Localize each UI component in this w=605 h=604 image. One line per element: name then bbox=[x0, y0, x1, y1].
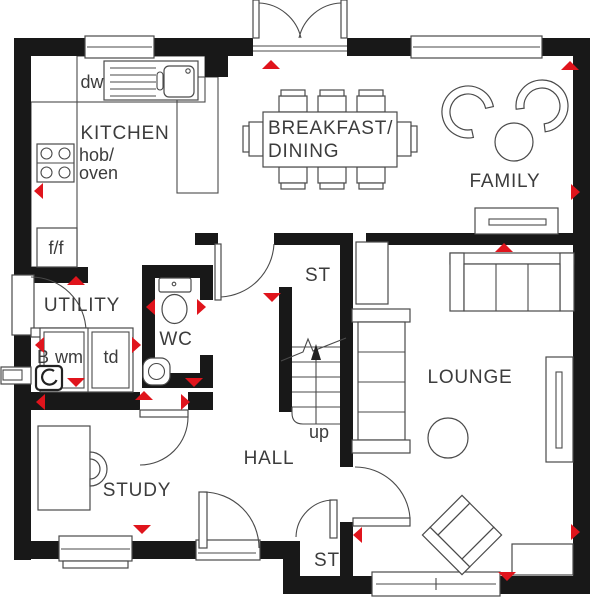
outside-tap bbox=[1, 367, 31, 384]
room-label-storage-upper: ST bbox=[305, 265, 331, 286]
lobby-wc-door bbox=[215, 244, 274, 300]
room-label-utility: UTILITY bbox=[44, 295, 120, 316]
label-hob-line2: oven bbox=[79, 163, 118, 183]
french-doors bbox=[253, 0, 347, 56]
direction-arrow-icon bbox=[197, 299, 206, 315]
tub-chair bbox=[516, 80, 568, 132]
label-hob-line1: hob/ bbox=[79, 145, 114, 165]
coffee-table bbox=[495, 123, 533, 161]
label-fridge-freezer: f/f bbox=[48, 238, 64, 258]
room-label-breakfast-line2: DINING bbox=[268, 141, 339, 162]
room-label-lounge: LOUNGE bbox=[427, 367, 512, 388]
stairs-up-arrow-icon bbox=[311, 344, 321, 360]
label-stairs-up: up bbox=[309, 422, 329, 442]
toilet bbox=[159, 278, 191, 324]
room-label-storage-lower: ST bbox=[314, 550, 340, 571]
armchair bbox=[422, 495, 501, 574]
study-furniture bbox=[38, 426, 107, 510]
direction-arrow-icon bbox=[262, 60, 280, 69]
cupboard bbox=[356, 242, 388, 304]
basin bbox=[143, 358, 170, 385]
label-tumble-dryer: td bbox=[103, 347, 118, 367]
sideboard bbox=[475, 208, 558, 234]
family-window bbox=[411, 36, 542, 58]
room-label-family: FAMILY bbox=[470, 171, 541, 192]
footstool bbox=[512, 544, 573, 575]
front-door bbox=[196, 492, 260, 560]
kitchen-window bbox=[85, 36, 154, 58]
study-door bbox=[140, 410, 188, 465]
room-label-hall: HALL bbox=[244, 448, 295, 469]
room-label-breakfast-line1: BREAKFAST/ bbox=[268, 118, 393, 139]
room-label-wc: WC bbox=[159, 329, 192, 350]
room-label-kitchen: KITCHEN bbox=[81, 123, 170, 144]
desk bbox=[38, 426, 90, 510]
study-window bbox=[59, 536, 132, 568]
label-dishwasher: dw bbox=[80, 72, 104, 92]
storage-lower-door bbox=[296, 500, 337, 538]
lounge-window bbox=[372, 572, 500, 596]
label-washing-machine: wm bbox=[54, 347, 83, 367]
bookcase bbox=[352, 309, 410, 453]
boiler bbox=[36, 366, 62, 390]
hob bbox=[37, 144, 74, 182]
room-label-study: STUDY bbox=[103, 480, 171, 501]
lounge-door bbox=[353, 467, 410, 526]
direction-arrow-icon bbox=[353, 527, 362, 543]
dining-set bbox=[243, 90, 417, 189]
direction-arrow-icon bbox=[34, 183, 43, 199]
direction-arrow-icon bbox=[263, 293, 281, 302]
tv-unit bbox=[546, 357, 573, 462]
sink-unit bbox=[104, 61, 198, 100]
direction-arrow-icon bbox=[133, 525, 151, 534]
tub-chair bbox=[442, 86, 493, 138]
side-table bbox=[428, 418, 468, 458]
floor-plan: KITCHEN BREAKFAST/ DINING FAMILY UTILITY… bbox=[0, 0, 605, 604]
direction-arrow-icon bbox=[132, 337, 141, 353]
sofa bbox=[450, 253, 574, 311]
family-furniture bbox=[442, 80, 568, 234]
